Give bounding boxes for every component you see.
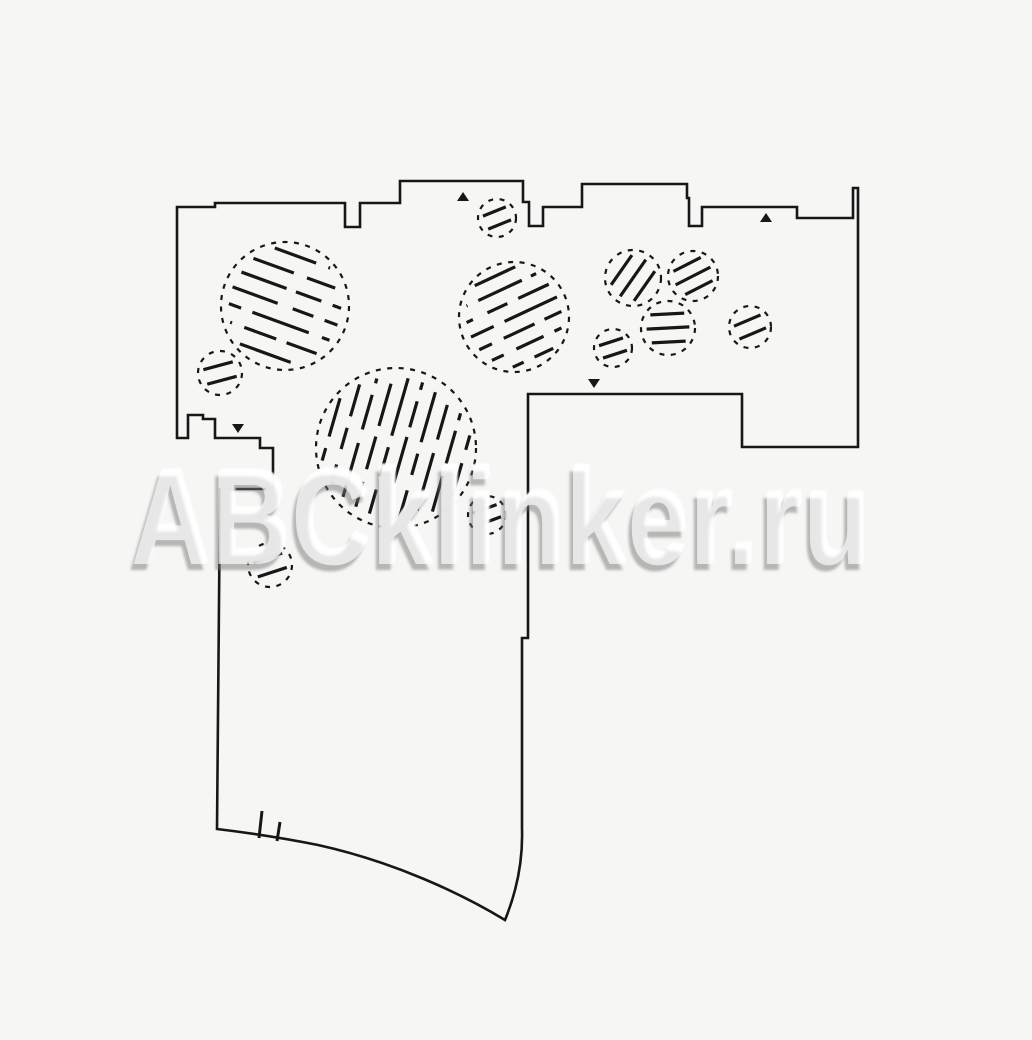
dashed-circle-border: [198, 351, 242, 395]
dashed-circle-border: [478, 199, 516, 237]
hatch-line: [275, 248, 330, 268]
hatch-line: [356, 377, 393, 507]
hatch-line: [203, 362, 232, 370]
hatched-circle: [312, 362, 481, 534]
hatch-line: [479, 311, 561, 349]
hatch-lines: [312, 362, 481, 534]
dashed-circle-border: [468, 496, 506, 534]
hatched-circle: [641, 301, 695, 355]
dashed-circle-border: [248, 543, 292, 587]
hatch-lines: [646, 313, 690, 343]
hatch-line: [739, 328, 766, 339]
hatch-lines: [452, 256, 576, 378]
hatch-line: [322, 398, 340, 460]
hatch-line: [258, 567, 287, 576]
hatch-line: [432, 413, 460, 511]
hatch-lines: [203, 362, 236, 384]
hatch-line: [685, 281, 712, 295]
hatch-lines: [473, 505, 501, 526]
hatched-circle: [248, 543, 292, 587]
hatch-lines: [599, 338, 627, 358]
drawing-stage: ABCklinker.ru: [0, 0, 1032, 1040]
direction-marker-down: [232, 424, 244, 433]
site-plan-svg: [0, 0, 1032, 1040]
hatch-line: [384, 382, 423, 517]
hatch-line: [399, 389, 436, 519]
hatch-line: [513, 348, 553, 367]
hatch-line: [492, 328, 562, 360]
hatched-circle: [478, 199, 516, 237]
hatch-line: [676, 267, 711, 285]
hatched-circle: [594, 329, 632, 367]
hatch-line: [650, 313, 684, 315]
hatch-line: [734, 315, 761, 326]
hatch-line: [207, 376, 236, 384]
hatch-line: [483, 207, 506, 216]
hatch-lines: [483, 207, 511, 229]
direction-marker-up: [457, 192, 469, 201]
hatch-line: [467, 284, 549, 322]
hatch-line: [673, 257, 700, 271]
hatched-circle: [605, 250, 661, 306]
hatch-line: [473, 505, 497, 514]
hatch-line: [467, 274, 537, 306]
hatch-lines: [609, 252, 658, 305]
hatch-lines: [253, 553, 287, 577]
hatch-line: [241, 272, 342, 309]
hatched-circle: [729, 306, 771, 348]
dashed-circle-border: [221, 242, 349, 370]
hatch-line: [229, 304, 330, 341]
hatch-line: [253, 258, 339, 289]
hatch-line: [634, 271, 655, 301]
hatch-lines: [215, 239, 355, 373]
hatch-line: [331, 384, 359, 482]
hatched-circle: [215, 239, 355, 373]
hatch-line: [369, 378, 408, 513]
hatch-line: [475, 267, 515, 286]
hatched-circle: [668, 251, 718, 301]
hatch-line: [415, 399, 449, 517]
direction-marker-up: [760, 213, 772, 222]
hatch-line: [452, 435, 470, 497]
hatch-line: [343, 379, 377, 497]
hatch-lines: [670, 256, 717, 297]
hatch-line: [652, 341, 686, 343]
hatch-line: [477, 517, 501, 526]
hatch-line: [253, 553, 282, 562]
hatched-circle: [198, 351, 242, 395]
hatch-line: [603, 350, 627, 358]
hatched-circle: [468, 496, 506, 534]
hatch-line: [599, 338, 623, 346]
dashed-circle-border: [594, 329, 632, 367]
hatch-line: [488, 220, 511, 229]
hatch-line: [240, 344, 295, 364]
hatch-line: [230, 322, 316, 353]
hatch-line: [647, 327, 690, 329]
plan-outline: [177, 181, 858, 920]
hatch-line: [471, 297, 557, 337]
hatch-lines: [734, 315, 766, 339]
hatch-line: [233, 287, 338, 325]
hatched-circle: [452, 256, 576, 378]
direction-marker-down: [588, 379, 600, 388]
hatch-line: [611, 255, 632, 285]
